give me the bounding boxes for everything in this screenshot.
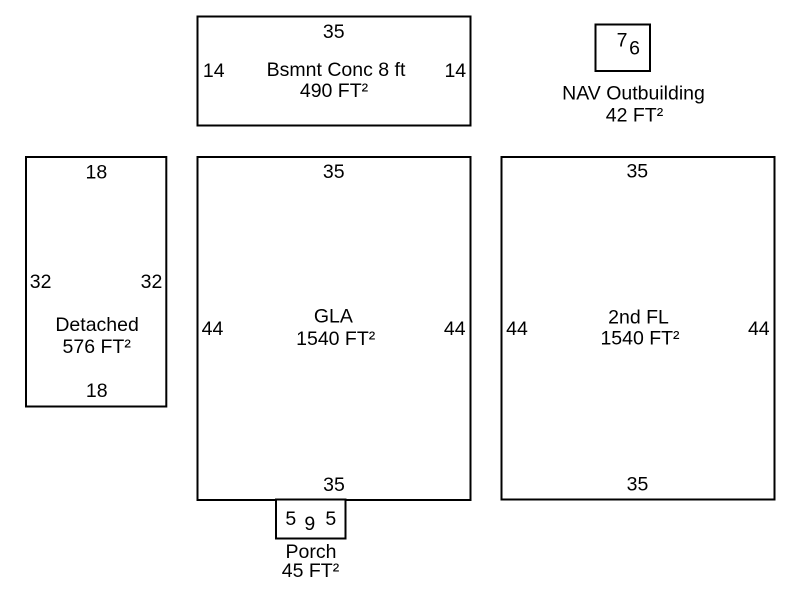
svg-text:32: 32 [141,271,163,293]
svg-text:576 FT²: 576 FT² [63,336,132,358]
svg-text:44: 44 [444,318,466,340]
svg-text:7: 7 [617,29,628,51]
svg-text:1540 FT²: 1540 FT² [296,328,376,350]
svg-text:5: 5 [325,508,336,530]
svg-text:42 FT²: 42 FT² [606,104,664,126]
svg-text:GLA: GLA [314,306,353,328]
svg-text:5: 5 [285,508,296,530]
svg-text:14: 14 [203,60,225,82]
svg-text:490 FT²: 490 FT² [300,80,369,102]
svg-text:1540 FT²: 1540 FT² [600,328,680,350]
svg-text:35: 35 [627,474,649,496]
svg-text:44: 44 [506,318,528,340]
svg-text:9: 9 [304,513,315,535]
svg-text:35: 35 [323,161,345,183]
svg-text:14: 14 [444,60,466,82]
svg-text:35: 35 [323,21,345,43]
svg-text:35: 35 [323,474,345,496]
svg-text:18: 18 [86,162,108,184]
svg-text:Bsmnt Conc 8 ft: Bsmnt Conc 8 ft [267,59,406,81]
svg-text:44: 44 [748,318,770,340]
svg-text:32: 32 [30,271,52,293]
svg-text:Detached: Detached [55,314,138,336]
svg-text:35: 35 [626,161,648,183]
svg-text:18: 18 [86,380,108,402]
svg-text:44: 44 [202,318,224,340]
svg-text:6: 6 [629,37,640,59]
svg-text:NAV Outbuilding: NAV Outbuilding [562,83,705,105]
svg-text:45 FT²: 45 FT² [282,560,340,582]
svg-text:2nd FL: 2nd FL [608,307,669,329]
